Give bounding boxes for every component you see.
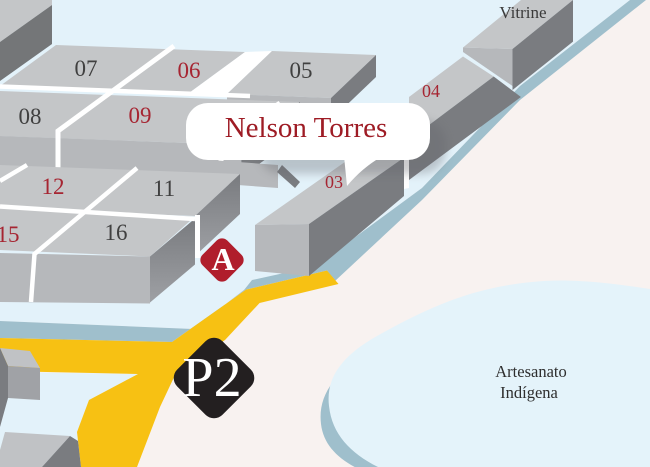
svg-text:08: 08 bbox=[19, 104, 42, 129]
svg-text:Vitrine: Vitrine bbox=[499, 3, 546, 22]
svg-text:Nelson Torres: Nelson Torres bbox=[225, 112, 388, 144]
svg-text:P2: P2 bbox=[182, 347, 241, 409]
svg-text:05: 05 bbox=[290, 58, 313, 83]
svg-text:16: 16 bbox=[105, 220, 128, 245]
svg-text:03: 03 bbox=[325, 172, 343, 192]
svg-text:A: A bbox=[211, 241, 234, 277]
svg-text:Indígena: Indígena bbox=[500, 383, 558, 402]
svg-text:Artesanato: Artesanato bbox=[495, 362, 566, 381]
svg-text:06: 06 bbox=[178, 58, 201, 83]
svg-text:11: 11 bbox=[153, 176, 175, 201]
svg-text:04: 04 bbox=[422, 81, 440, 101]
svg-text:12: 12 bbox=[42, 174, 65, 199]
svg-text:15: 15 bbox=[0, 222, 20, 247]
svg-text:09: 09 bbox=[129, 103, 152, 128]
svg-text:07: 07 bbox=[75, 56, 98, 81]
